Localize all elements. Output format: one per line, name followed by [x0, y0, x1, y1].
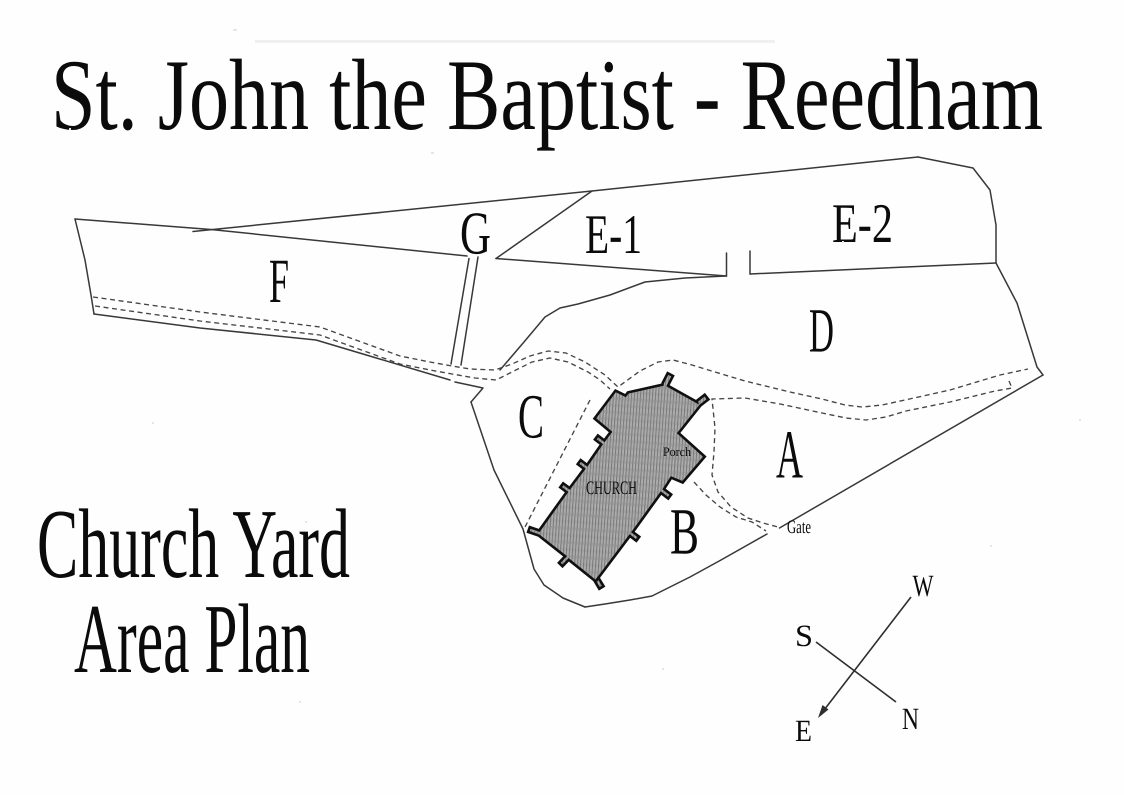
- svg-text:B: B: [670, 496, 699, 569]
- svg-text:A: A: [776, 417, 803, 493]
- svg-text:F: F: [269, 246, 289, 316]
- svg-text:Porch: Porch: [663, 444, 691, 459]
- svg-text:Gate: Gate: [787, 517, 811, 538]
- svg-text:G: G: [460, 201, 491, 268]
- svg-text:St. John the Baptist - Reedham: St. John the Baptist - Reedham: [51, 39, 1043, 151]
- svg-text:Area Plan: Area Plan: [74, 585, 310, 694]
- svg-text:Church Yard: Church Yard: [37, 490, 350, 599]
- svg-text:W: W: [913, 568, 935, 603]
- svg-text:N: N: [902, 701, 919, 736]
- svg-text:S: S: [795, 618, 813, 653]
- svg-text:D: D: [809, 296, 834, 366]
- svg-text:CHURCH: CHURCH: [586, 478, 637, 499]
- svg-text:E-1: E-1: [585, 204, 642, 266]
- svg-text:E-2: E-2: [832, 193, 893, 255]
- svg-text:C: C: [518, 382, 544, 452]
- svg-text:E: E: [795, 713, 812, 748]
